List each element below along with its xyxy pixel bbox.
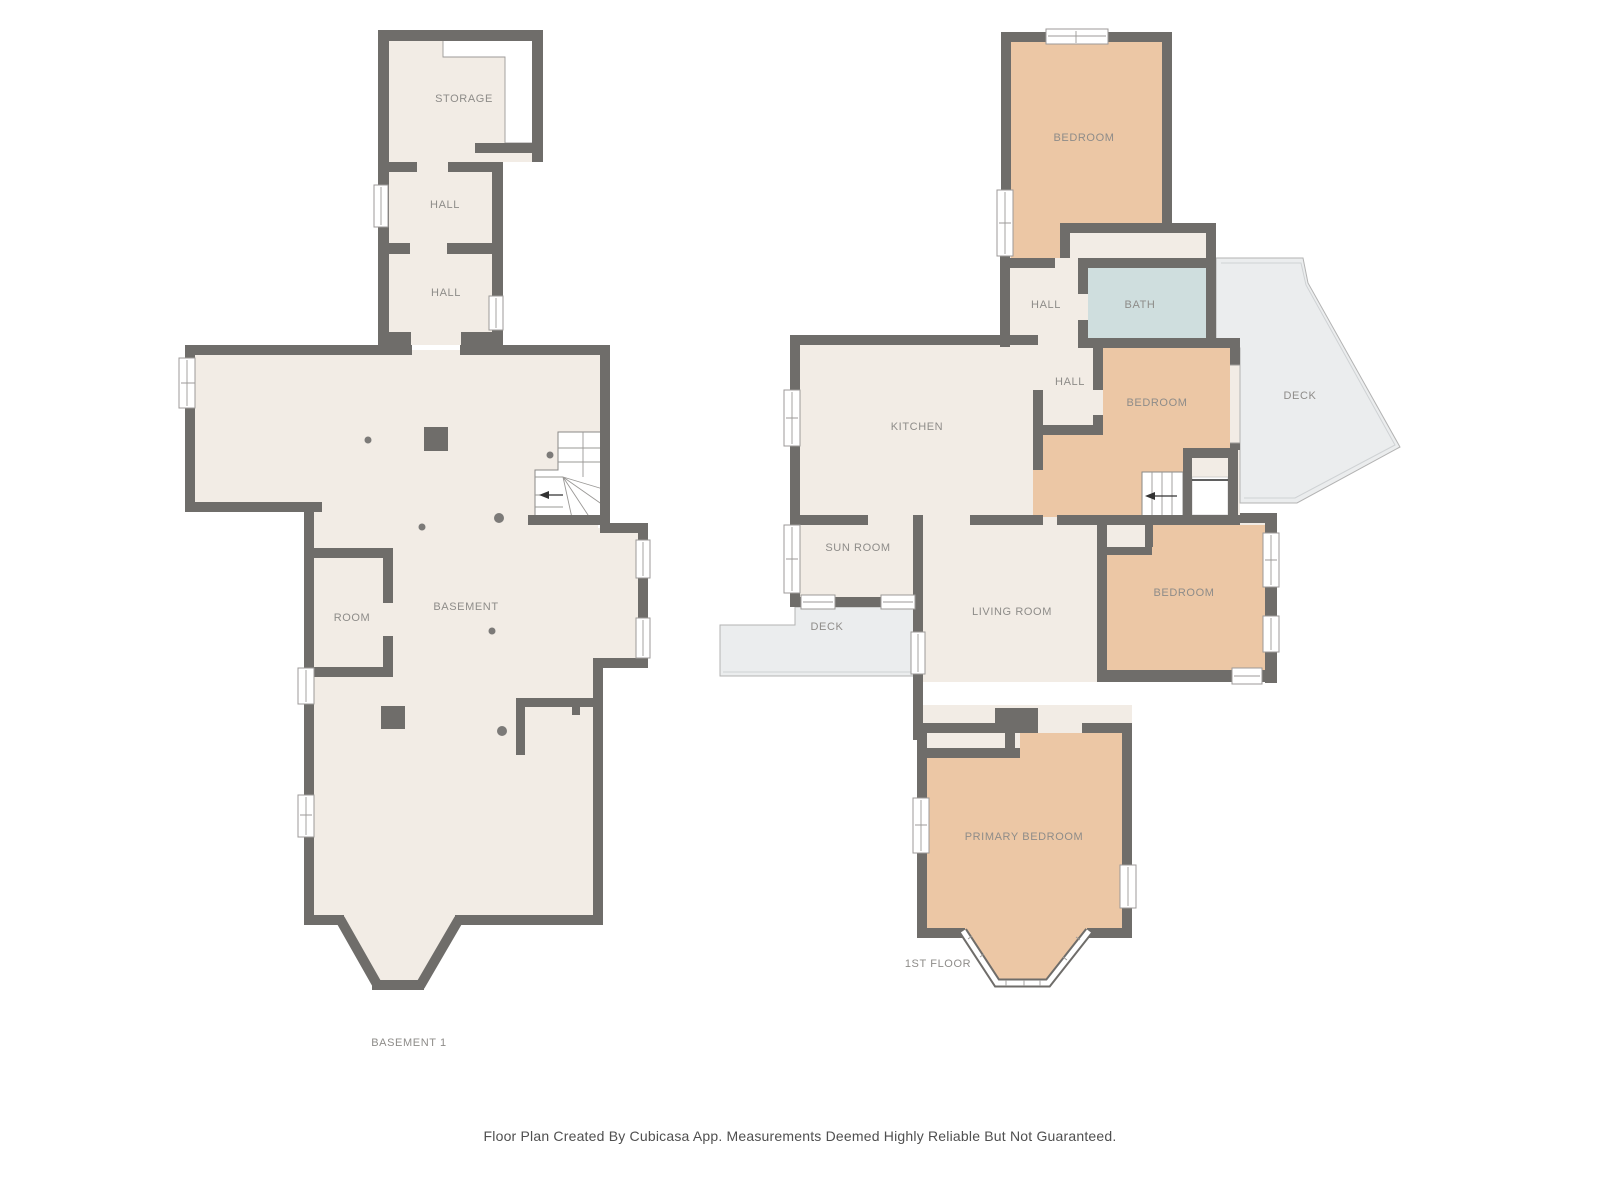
stairwell-void xyxy=(1192,477,1228,515)
room-label-hall-lower: HALL xyxy=(1055,376,1085,388)
column-dot xyxy=(494,513,504,523)
room-label-room: ROOM xyxy=(334,612,371,624)
floor-plan-page: STORAGE HALL HALL BASEMENT ROOM BASEMENT… xyxy=(0,0,1600,1200)
first-floor-stairs xyxy=(1142,472,1183,517)
column-dot xyxy=(497,726,507,736)
room-label-deck-right: DECK xyxy=(1284,390,1317,402)
footer-disclaimer: Floor Plan Created By Cubicasa App. Meas… xyxy=(484,1128,1117,1144)
primary-bedroom-floor xyxy=(925,733,1122,985)
column-dot xyxy=(547,452,554,459)
column-dot xyxy=(365,437,372,444)
column-dot xyxy=(489,628,496,635)
floor-title-first-floor: 1ST FLOOR xyxy=(905,958,971,970)
bedroom-lower-closet xyxy=(1107,525,1145,547)
deck-right xyxy=(1216,258,1400,503)
room-label-kitchen: KITCHEN xyxy=(891,421,943,433)
basement-plan: STORAGE HALL HALL BASEMENT ROOM BASEMENT… xyxy=(179,30,650,1049)
room-label-hall-lower: HALL xyxy=(431,287,461,299)
room-label-hall-upper: HALL xyxy=(1031,299,1061,311)
deck-left xyxy=(720,607,915,676)
room-label-bedroom-lower: BEDROOM xyxy=(1153,587,1214,599)
room-label-deck-left: DECK xyxy=(811,621,844,633)
room-label-primary-bedroom: PRIMARY BEDROOM xyxy=(965,831,1084,843)
room-label-storage: STORAGE xyxy=(435,93,493,105)
room-label-hall-upper: HALL xyxy=(430,199,460,211)
room-label-bath: BATH xyxy=(1125,299,1156,311)
first-floor-plan: BEDROOM HALL BATH HALL DECK BEDROOM KITC… xyxy=(720,29,1400,986)
room-label-bedroom-middle: BEDROOM xyxy=(1126,397,1187,409)
floor-plan-canvas: STORAGE HALL HALL BASEMENT ROOM BASEMENT… xyxy=(0,0,1600,1200)
column-dot xyxy=(419,524,426,531)
room-label-sun-room: SUN ROOM xyxy=(825,542,890,554)
room-label-basement: BASEMENT xyxy=(433,601,498,613)
room-label-living-room: LIVING ROOM xyxy=(972,606,1052,618)
room-label-bedroom-top: BEDROOM xyxy=(1053,132,1114,144)
floor-title-basement: BASEMENT 1 xyxy=(371,1037,447,1049)
